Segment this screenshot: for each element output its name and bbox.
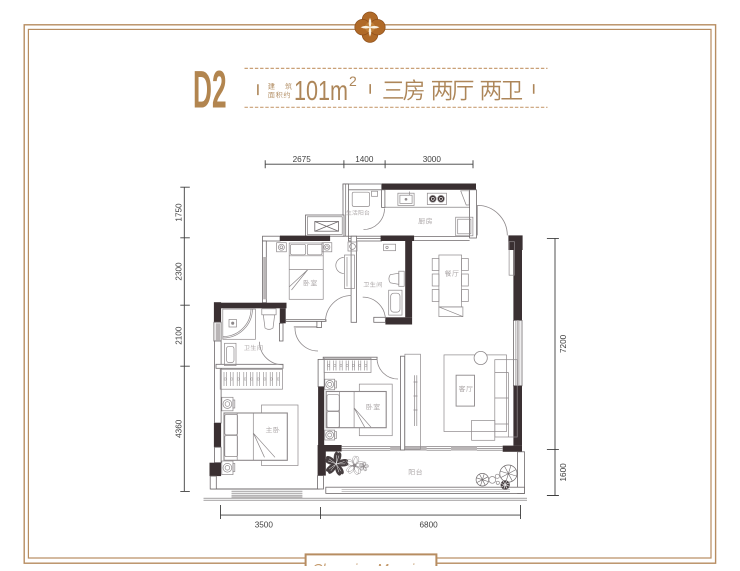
- svg-text:2675: 2675: [293, 155, 312, 164]
- svg-text:2: 2: [349, 73, 357, 89]
- svg-text:4360: 4360: [174, 419, 183, 438]
- svg-text:3500: 3500: [255, 520, 274, 529]
- svg-text:2300: 2300: [174, 262, 183, 281]
- svg-text:Charming Mansion: Charming Mansion: [312, 561, 430, 567]
- svg-text:1750: 1750: [174, 203, 183, 222]
- svg-text:1400: 1400: [355, 155, 374, 164]
- svg-text:6800: 6800: [419, 520, 438, 529]
- svg-text:101m: 101m: [294, 75, 348, 106]
- svg-text:1600: 1600: [559, 463, 568, 482]
- svg-text:7200: 7200: [559, 334, 568, 353]
- svg-text:2100: 2100: [174, 326, 183, 345]
- svg-text:D2: D2: [193, 60, 227, 119]
- svg-text:3000: 3000: [423, 155, 442, 164]
